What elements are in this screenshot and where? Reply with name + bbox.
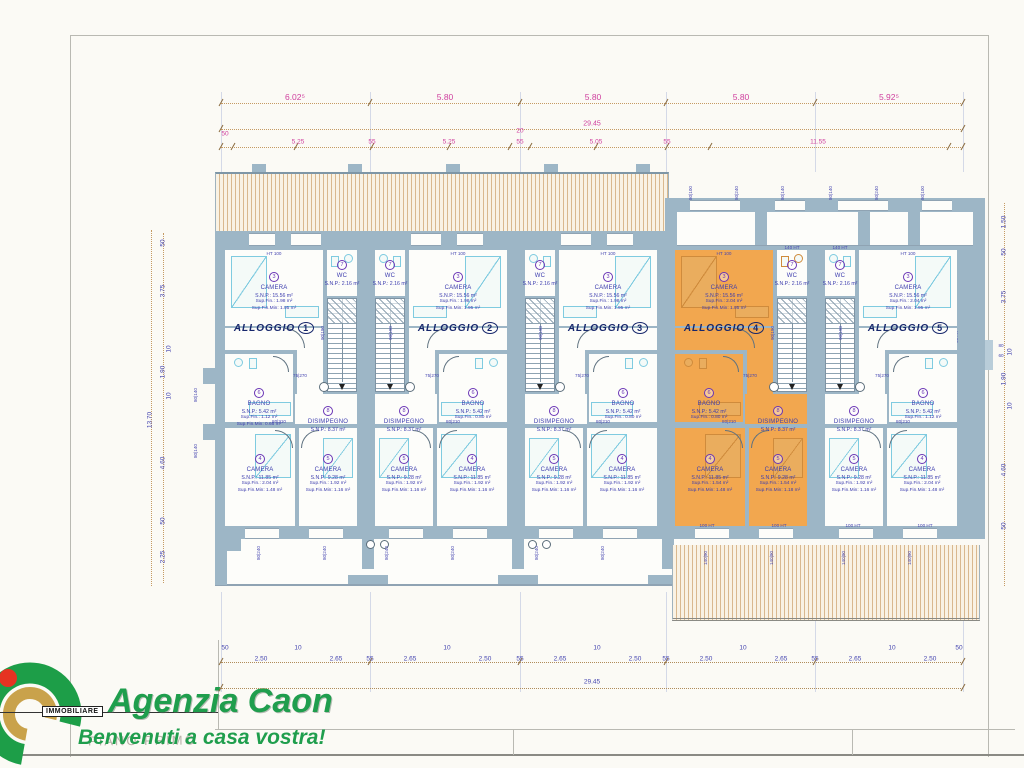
room-name: CAMERA [749,467,807,475]
window-dim-label: 80|140 [194,448,216,458]
room-label: 4CAMERAS.N.P.: 11.85 m²Sup.Fin.: 1.54 m²… [675,446,745,486]
staircase-down-arrow [339,384,345,390]
window-dim-label: 140 HT [767,246,817,253]
sink [939,358,948,367]
alloggio-number: 2 [482,322,498,334]
window-dim-label: 100 HT [903,524,947,531]
window-dim-label: 80|240 [257,548,281,560]
dim-line [221,688,963,689]
dim-value: 5.80 [585,92,602,102]
dim-value: 10 [166,392,173,399]
dim-value: 50 [221,645,228,652]
dim-value: 1.90 [1001,373,1008,386]
dim-value: 50 [1001,248,1008,255]
window-dim-label: 80|240 [875,190,897,200]
titleblock-line-v3 [852,729,853,755]
staircase-upper-flight-hatch [778,299,806,323]
alloggio-word: ALLOGGIO [568,323,629,334]
room-number-badge: 8 [849,406,859,416]
window-dim-label: 80|100 [689,190,711,200]
alloggio-number: 1 [298,322,314,334]
room-name: DISIMPEGNO [743,419,813,427]
dim-value: 10 [294,645,301,652]
dim-value: 55 [516,656,523,663]
roof-notch [636,164,650,172]
dim-value: 2.50 [700,656,713,663]
dim-total: 13.70 [147,412,154,428]
dim-value: 11.55 [810,139,826,146]
window-dim-label: 80|240 [385,548,409,560]
floor-plan-sheet: PIANO PRIMO IMMOBILIARE Agenzia Caon Ben… [0,0,1024,768]
roof-notch [252,164,266,172]
dim-total: 29.45 [583,121,601,128]
dim-value: 20 [516,128,523,135]
toilet [475,358,483,369]
room-area-line: S.N.P.: 2.16 m² [815,281,865,288]
frame-left-line [70,35,71,757]
dim-value: 2.65 [775,656,788,663]
room-name: WC [317,273,367,281]
dim-value: 2.50 [255,656,268,663]
room-name: BAGNO [227,401,291,409]
unit-2: 7WCS.N.P.: 2.16 m²3CAMERAS.N.P.: 15.56 m… [365,198,517,539]
sink [489,358,498,367]
alloggio-label: ALLOGGIO1 [225,322,323,336]
room-area-line: S.N.P.: 8.37 m² [369,427,439,434]
room-label: 3CAMERAS.N.P.: 15.56 m²Sup.Fin.: 1.98 m²… [231,264,317,310]
window-dim-label: 90|190 [771,330,793,340]
frame-bottom-line [0,754,1024,756]
window-dim-label: 80|140 [194,392,216,402]
balcony-pier [348,575,388,584]
balcony-door-opening [309,528,343,539]
room-number-badge: 6 [618,388,628,398]
room-number-badge: 4 [917,454,927,464]
room-number-badge: 5 [849,454,859,464]
alloggio-label: ALLOGGIO4 [675,322,773,336]
window-dim-label: 90|190 [389,330,411,340]
window-dim-label: HT 100 [231,252,317,259]
room-number-badge: 7 [835,260,845,270]
guide-line [666,92,667,172]
window-dim-label: 75|270 [871,374,893,381]
staircase-down-arrow [537,384,543,390]
dim-value: 55 [662,656,669,663]
dim-total: 29.45 [584,679,600,686]
guide-line [221,592,222,692]
dim-value: 55 [811,656,818,663]
landing-post [769,382,779,392]
balcony-bottom-units123 [215,539,680,584]
room-number-badge: 8 [399,406,409,416]
dim-value: 50 [160,517,167,524]
landing-post [405,382,415,392]
room-name: CAMERA [299,467,357,475]
room-number-badge: 8 [323,406,333,416]
window-dim-label: 140|90 [908,555,928,565]
staircase-down-arrow [837,384,843,390]
window-dim-label: 90|190 [539,330,561,340]
titleblock-line-h [215,729,1015,730]
room-number-badge: 5 [323,454,333,464]
dim-value: 10 [1007,402,1014,409]
toilet [925,358,933,369]
room-label: 8DISIMPEGNOS.N.P.: 8.37 m² [743,398,813,424]
window-dim-label: 80|240 [735,190,757,200]
window-dim-label: 80|240 [323,548,347,560]
room-number-badge: 5 [549,454,559,464]
dim-value: 1.90 [160,366,167,379]
dim-value: 10 [166,345,173,352]
toilet [625,358,633,369]
guide-line [370,92,371,172]
staircase-upper-flight-hatch [376,299,404,323]
room-area-line: S.N.P.: 8.37 m² [519,427,589,434]
dim-value: 5.80 [733,92,750,102]
room-area-line: Sup.Fin.Min: 1.95 m² [415,306,501,312]
window-dim-label: 80|210 [717,420,741,427]
unit-5: 7WCS.N.P.: 2.16 m²3CAMERAS.N.P.: 15.56 m… [815,198,967,539]
room-label: 6BAGNOS.N.P.: 5.42 m²Sup.Fin.: 0.80 m² [677,380,741,416]
room-label: 6BAGNOS.N.P.: 5.42 m²Sup.Fin.: 0.80 m² [591,380,655,416]
room-name: DISIMPEGNO [819,419,889,427]
window-dim-label: 140 HT [815,246,865,253]
room-area-line: S.N.P.: 2.16 m² [317,281,367,288]
room-label: 6BAGNOS.N.P.: 5.42 m²Sup.Fin.: 1.12 m² [891,380,955,416]
room-number-badge: 6 [468,388,478,398]
room-number-badge: 4 [617,454,627,464]
room-area-line: Sup.Fin.Min: 1.95 m² [565,306,651,312]
staircase [375,298,405,392]
alloggio-number: 4 [748,322,764,334]
room-name: CAMERA [587,467,657,475]
unit-1: 7WCS.N.P.: 2.16 m²3CAMERAS.N.P.: 15.56 m… [215,198,367,539]
alloggio-word: ALLOGGIO [868,323,929,334]
dim-value: 2.25 [160,551,167,564]
dim-value: 50 [955,645,962,652]
dim-value: 55 [663,139,670,146]
dim-value: 3.75 [1001,291,1008,304]
room-number-badge: 7 [787,260,797,270]
balcony-pier [215,539,227,585]
room-label: 7WCS.N.P.: 2.16 m² [317,252,367,288]
guide-line [520,592,521,692]
room-label: 8DISIMPEGNOS.N.P.: 8.37 m² [819,398,889,424]
staircase-upper-flight-hatch [826,299,854,323]
staircase [825,298,855,392]
window-opening [457,233,483,246]
room-area-line: Sup.Fin.Min: 1.16 m² [437,488,507,494]
staircase-down-arrow [789,384,795,390]
room-area-line: Sup.Fin.Min: 1.48 m² [675,488,745,494]
guide-line [963,92,964,172]
room-number-badge: 8 [773,406,783,416]
window-opening [607,233,633,246]
room-area-line: S.N.P.: 2.16 m² [365,281,415,288]
balcony-door-opening [539,528,573,539]
guide-line [666,592,667,692]
dim-value: 2.50 [629,656,642,663]
room-name: CAMERA [225,467,295,475]
unit-3: 7WCS.N.P.: 2.16 m²3CAMERAS.N.P.: 15.56 m… [515,198,667,539]
room-name: BAGNO [441,401,505,409]
dim-value: 4.60 [1001,464,1008,477]
dim-value: 5.25 [292,139,305,146]
window-dim-label: 140|90 [704,555,724,565]
alloggio-number: 3 [632,322,648,334]
alloggio-word: ALLOGGIO [684,323,745,334]
room-label: 3CAMERAS.N.P.: 15.56 m²Sup.Fin.: 2.04 m²… [681,264,767,310]
dim-value: 10 [1007,348,1014,355]
window-dim-label: 100 HT [685,524,729,531]
dim-value: 1.50 [1001,216,1008,229]
frame-top-line [70,35,988,36]
room-name: WC [815,273,865,281]
sink [684,358,693,367]
room-area-line: S.N.P.: 8.37 m² [819,427,889,434]
window-dim-label: 75|270 [571,374,593,381]
room-area-line: Sup.Fin.Min: 1.16 m² [587,488,657,494]
window-dim-label: 80|140 [829,190,851,200]
room-label: 7WCS.N.P.: 2.16 m² [815,252,865,288]
dim-value: 2.65 [554,656,567,663]
balcony-door-opening [603,528,637,539]
room-number-badge: 6 [254,388,264,398]
room-name: WC [365,273,415,281]
window-dim-label: HT 100 [415,252,501,259]
dim-value: 3.75 [160,285,167,298]
landing-post [319,382,329,392]
unit-4: 7WCS.N.P.: 2.16 m²3CAMERAS.N.P.: 15.56 m… [665,198,817,539]
room-area-line: S.N.P.: 2.16 m² [515,281,565,288]
room-label: 4CAMERAS.N.P.: 11.85 m²Sup.Fin.: 2.04 m²… [225,446,295,486]
staircase-upper-flight-hatch [526,299,554,323]
room-number-badge: 5 [399,454,409,464]
dim-value: 50 [1001,522,1008,529]
room-number-badge: 8 [549,406,559,416]
wall-bump-right [985,340,993,370]
dim-value: 5.80 [437,92,454,102]
room-label: 5CAMERAS.N.P.: 9.28 m²Sup.Fin.: 1.92 m²S… [525,446,583,486]
dim-line [221,129,963,130]
room-name: DISIMPEGNO [519,419,589,427]
roof-notch [544,164,558,172]
room-name: CAMERA [865,285,951,293]
room-area-line: S.N.P.: 8.37 m² [293,427,363,434]
room-label: 8DISIMPEGNOS.N.P.: 8.37 m² [519,398,589,424]
window-dim-label: 80|140 [781,190,803,200]
window-dim-label: 80|100 [921,190,943,200]
room-name: WC [515,273,565,281]
window-dim-label: 80|210 [441,420,465,427]
room-name: CAMERA [565,285,651,293]
dim-value: 50 [160,239,167,246]
room-area-line: Sup.Fin.Min: 1.48 m² [225,488,295,494]
sink [639,358,648,367]
titleblock-line-v2 [513,729,514,755]
room-area-line: S.N.P.: 2.16 m² [767,281,817,288]
alloggio-label: ALLOGGIO2 [409,322,507,336]
dim-line [221,103,963,104]
room-number-badge: 6 [704,388,714,398]
window-opening [411,233,441,246]
room-name: CAMERA [825,467,883,475]
room-number-badge: 6 [918,388,928,398]
room-number-badge: 7 [535,260,545,270]
window-dim-label: 80|210 [891,420,915,427]
dim-value: 2.50 [479,656,492,663]
window-dim-label: 80|240 [601,548,625,560]
dim-value: 2.50 [924,656,937,663]
room-number-badge: 5 [773,454,783,464]
window-dim-label: 75|270 [289,374,311,381]
room-label: 5CAMERAS.N.P.: 9.28 m²Sup.Fin.: 1.54 m²S… [749,446,807,486]
room-name: CAMERA [887,467,957,475]
room-area-line: Sup.Fin.Min: 1.95 m² [681,306,767,312]
dim-value: 5.92⁵ [879,92,899,102]
room-number-badge: 4 [705,454,715,464]
window-dim-label: 80|210 [267,420,291,427]
alloggio-word: ALLOGGIO [234,323,295,334]
dim-value: 2.65 [330,656,343,663]
room-label: 3CAMERAS.N.P.: 15.56 m²Sup.Fin.: 2.04 m²… [865,264,951,310]
room-number-badge: 7 [337,260,347,270]
dim-value: 5.05 [590,139,603,146]
dim-value: 10 [888,645,895,652]
dim-value: 2.65 [404,656,417,663]
room-label: 7WCS.N.P.: 2.16 m² [515,252,565,288]
guide-line [370,592,371,692]
dim-value: 50 [221,131,228,138]
room-name: CAMERA [525,467,583,475]
room-area-line: Sup.Fin.Min: 1.95 m² [865,306,951,312]
room-label: 3CAMERAS.N.P.: 15.56 m²Sup.Fin.: 1.98 m²… [415,264,501,310]
dim-value: 55 [366,656,373,663]
room-number-badge: 3 [453,272,463,282]
staircase-down-arrow [387,384,393,390]
dim-value: 10 [443,645,450,652]
frame-right-line [988,35,989,757]
room-label: 8DISIMPEGNOS.N.P.: 8.37 m² [369,398,439,424]
room-number-badge: 3 [719,272,729,282]
room-number-badge: 4 [467,454,477,464]
room-area-line: Sup.Fin.Min: 1.16 m² [375,488,433,494]
dim-line [221,147,963,148]
room-area-line: Sup.Fin.Min: 1.16 m² [825,488,883,494]
roof-notch [348,164,362,172]
room-label: 4CAMERAS.N.P.: 11.85 m²Sup.Fin.: 2.04 m²… [887,446,957,486]
window-dim-label: 140|90 [770,555,790,565]
room-number-badge: 3 [269,272,279,282]
balcony-slab-edge [215,584,680,586]
staircase-upper-flight-hatch [328,299,356,323]
toilet [699,358,707,369]
window-opening [249,233,275,246]
room-area-line: Sup.Fin.Min: 1.18 m² [749,488,807,494]
room-label: 4CAMERAS.N.P.: 11.85 m²Sup.Fin.: 1.92 m²… [587,446,657,486]
room-number-badge: 3 [603,272,613,282]
room-label: 3CAMERAS.N.P.: 15.56 m²Sup.Fin.: 1.98 m²… [565,264,651,310]
room-number-badge: 7 [385,260,395,270]
balcony-pier [512,539,524,569]
window-dim-label: 80|240 [451,548,475,560]
dim-value: 4.60 [160,457,167,470]
room-name: WC [767,273,817,281]
window-dim-label: 80|210 [591,420,615,427]
room-area-line: Sup.Fin.Min: 1.16 m² [299,488,357,494]
staircase [525,298,555,392]
landing-post [855,382,865,392]
room-label: 6BAGNOS.N.P.: 5.42 m²Sup.Fin.: 0.80 m² [441,380,505,416]
window-dim-label: 90|190 [839,330,861,340]
dim-value: 6.02⁵ [285,92,305,102]
room-area-line: S.N.P.: 8.37 m² [743,427,813,434]
room-label: 7WCS.N.P.: 2.16 m² [767,252,817,288]
dim-line [151,230,152,586]
room-name: CAMERA [681,285,767,293]
room-name: CAMERA [375,467,433,475]
dim-value: 10 [739,645,746,652]
sink [234,358,243,367]
window-dim-label: 90|190 [321,330,343,340]
balcony-door-opening [453,528,487,539]
landing-post [555,382,565,392]
window-dim-label: HT 100 [565,252,651,259]
logo-immobiliare-label: IMMOBILIARE [42,706,103,717]
room-name: BAGNO [591,401,655,409]
room-name: BAGNO [891,401,955,409]
window-opening [291,233,321,246]
window-dim-label: 75|270 [739,374,761,381]
window-dim-label: 140|90 [842,555,862,565]
room-area-line: Sup.Fin.Min: 1.95 m² [231,306,317,312]
toilet [249,358,257,369]
room-name: CAMERA [675,467,745,475]
room-name: DISIMPEGNO [369,419,439,427]
room-label: 5CAMERAS.N.P.: 9.28 m²Sup.Fin.: 1.92 m²S… [825,446,883,486]
room-label: 7WCS.N.P.: 2.16 m² [365,252,415,288]
room-label: 5CAMERAS.N.P.: 9.28 m²Sup.Fin.: 1.92 m²S… [299,446,357,486]
alloggio-label: ALLOGGIO5 [859,322,957,336]
window-dim-label: 80|240 [535,548,559,560]
window-dim-label: HT 100 [865,252,951,259]
window-dim-label: 75|270 [421,374,443,381]
balcony-door-opening [389,528,423,539]
window-dim-label: 100 HT [831,524,875,531]
alloggio-word: ALLOGGIO [418,323,479,334]
room-label: 8DISIMPEGNOS.N.P.: 8.37 m² [293,398,363,424]
room-name: CAMERA [437,467,507,475]
dim-value: 55 [516,139,523,146]
balcony-pier [498,575,538,584]
dim-value: 5.25 [443,139,456,146]
room-label: 5CAMERAS.N.P.: 9.28 m²Sup.Fin.: 1.92 m²S… [375,446,433,486]
alloggio-label: ALLOGGIO3 [559,322,657,336]
room-name: DISIMPEGNO [293,419,363,427]
dim-value: 2.65 [849,656,862,663]
column-pillar [366,540,375,549]
window-opening [561,233,591,246]
room-area-line: Sup.Fin.Min: 1.48 m² [887,488,957,494]
window-dim-label: HT 100 [681,252,767,259]
window-dim-label: 100 HT [757,524,801,531]
staircase [327,298,357,392]
room-label: 4CAMERAS.N.P.: 11.85 m²Sup.Fin.: 1.92 m²… [437,446,507,486]
balcony-door-opening [245,528,279,539]
room-number-badge: 4 [255,454,265,464]
dim-value: 10 [593,645,600,652]
staircase [777,298,807,392]
